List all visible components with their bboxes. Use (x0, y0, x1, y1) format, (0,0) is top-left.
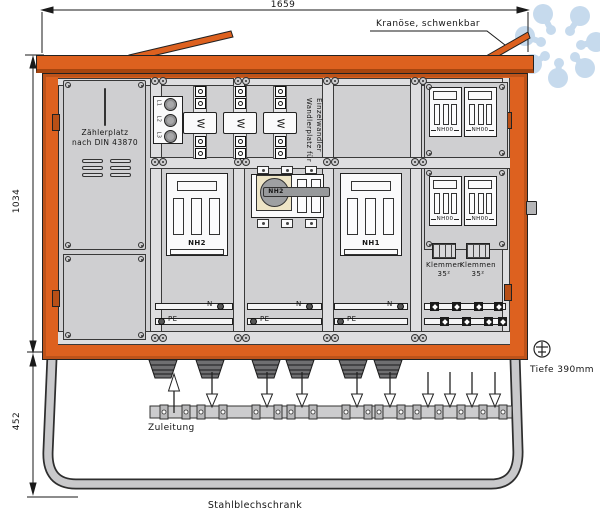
nh2-top-bar (177, 181, 217, 191)
screw (138, 256, 144, 262)
nh00-label: NH00 (431, 216, 459, 222)
nh00-top-bar (468, 180, 492, 189)
screw (234, 334, 242, 342)
vent-slot (110, 159, 131, 163)
nh2-fuse-label: NH2 (166, 239, 228, 247)
screw (151, 334, 159, 342)
screw (159, 77, 167, 85)
screw (426, 170, 432, 176)
outgoing-arrow (467, 372, 478, 407)
fuse-slot (451, 104, 457, 125)
nh2-switch-label: NH2 (262, 188, 290, 195)
screw (426, 150, 432, 156)
screw (426, 84, 432, 90)
switch-terminal (281, 166, 293, 174)
cable-gland (196, 360, 224, 378)
fuse-slot (191, 198, 202, 235)
phase-knob (164, 98, 177, 111)
phase-knob (164, 114, 177, 127)
fuse-slot (434, 193, 440, 214)
cable-gland (286, 360, 314, 378)
screw (323, 334, 331, 342)
transformer-terminal (195, 136, 206, 147)
screw (419, 77, 427, 85)
meter-label-line1: Zählerplatz (58, 128, 152, 138)
screw (426, 241, 432, 247)
pe-label: PE (260, 315, 269, 323)
screw (234, 158, 242, 166)
phase-label: L3 (155, 132, 161, 139)
transformer-terminal (275, 136, 286, 147)
screw (499, 150, 505, 156)
phase-label: L1 (155, 100, 161, 107)
screw (242, 158, 250, 166)
n-label: N (387, 300, 393, 308)
fuse-slot (347, 198, 358, 235)
screw (419, 158, 427, 166)
nh2-bottom-bar (170, 249, 224, 255)
n-terminal (397, 303, 404, 310)
screw (138, 332, 144, 338)
pe-terminal (337, 318, 344, 325)
outgoing-arrow (490, 372, 501, 407)
klemmen-terminal (432, 243, 456, 259)
dimension-height-value: 1034 (12, 179, 22, 223)
hinge (504, 284, 512, 301)
screw (499, 84, 505, 90)
screw (411, 158, 419, 166)
n-label: N (296, 300, 302, 308)
cable-gland (252, 360, 280, 378)
fuse-slot (443, 193, 449, 214)
screw (65, 242, 71, 248)
meter-label-line2: nach DIN 43870 (58, 138, 152, 148)
switch-terminal (305, 219, 317, 228)
pe-label: PE (347, 315, 356, 323)
mounting-rail (150, 405, 512, 419)
vent-slot (110, 173, 131, 177)
vent-slot (82, 166, 103, 170)
screw (411, 334, 419, 342)
screw (159, 158, 167, 166)
cable-gland (374, 360, 402, 378)
cable-gland (149, 360, 177, 378)
transformer-body: W (263, 112, 297, 134)
vent-slot (82, 173, 103, 177)
screw (331, 158, 339, 166)
fuse-slot (478, 104, 484, 125)
switch-terminal (305, 166, 317, 174)
outgoing-arrow (423, 372, 434, 407)
door-handle (526, 201, 537, 215)
nh00-top-bar (433, 91, 457, 100)
nh00-label: NH00 (466, 216, 494, 222)
depth-label: Tiefe 390mm (530, 365, 594, 375)
supply-label: Zuleitung (148, 423, 195, 433)
dimension-width-value: 1659 (255, 0, 311, 10)
screw (499, 241, 505, 247)
bus-clamp (474, 302, 483, 311)
pe-label: PE (168, 315, 177, 323)
transformer-area-label2: Einzelwandler (315, 89, 323, 161)
fuse-slot (469, 193, 475, 214)
screw (242, 77, 250, 85)
screw (323, 158, 331, 166)
fuse-slot (486, 193, 492, 214)
switch-terminal (281, 219, 293, 228)
transformer-terminal (275, 148, 286, 159)
crane-label: Kranöse, schwenkbar (368, 19, 488, 29)
screw (323, 77, 331, 85)
n-terminal (217, 303, 224, 310)
cable-gland (339, 360, 367, 378)
technical-drawing: Zählerplatz nach DIN 43870 L1 L2 L3 W W … (0, 0, 600, 517)
phase-label: L2 (155, 116, 161, 123)
transformer-symbol: W (234, 118, 245, 128)
nh00-top-bar (433, 180, 457, 189)
screw (159, 334, 167, 342)
cable-glands (149, 360, 402, 378)
screw (138, 82, 144, 88)
bus-clamp (498, 317, 507, 326)
transformer-terminal (235, 98, 246, 109)
pe-busbar (155, 318, 233, 325)
fuse-slot (478, 193, 484, 214)
pe-terminal (250, 318, 257, 325)
screw (151, 158, 159, 166)
dimension-width-line (42, 7, 528, 53)
meter-pointer (104, 88, 106, 126)
fuse-slot (173, 198, 184, 235)
fuse-slot (383, 198, 394, 235)
klemmen-label: Klemmen 35² (458, 261, 498, 279)
earth-symbol (534, 341, 550, 357)
transformer-terminal (235, 86, 246, 97)
hinge (52, 290, 60, 307)
nh00-fuse-strip: NH00 (429, 176, 462, 226)
bus-clamp (462, 317, 471, 326)
bus-clamp (494, 302, 503, 311)
fuse-slot (434, 104, 440, 125)
bus-clamp (440, 317, 449, 326)
bus-clamp (430, 302, 439, 311)
fuse-slot (443, 104, 449, 125)
transformer-terminal (275, 98, 286, 109)
screw (65, 332, 71, 338)
transformer-body: W (183, 112, 217, 134)
pe-busbar (334, 318, 408, 325)
pe-terminal (158, 318, 165, 325)
fuse-slot (365, 198, 376, 235)
transformer-body: W (223, 112, 257, 134)
stand-frame (48, 357, 518, 484)
vertical-rail (410, 78, 422, 345)
screw (499, 170, 505, 176)
fuse-slot (469, 104, 475, 125)
nh00-fuse-strip: NH00 (464, 87, 497, 137)
fuse-slot (209, 198, 220, 235)
screw (419, 334, 427, 342)
vent-slot (110, 166, 131, 170)
pe-busbar (247, 318, 322, 325)
nh1-fuse-label: NH1 (340, 239, 402, 247)
transformer-terminal (275, 86, 286, 97)
transformer-area-label: Wandlerplatz für (305, 87, 313, 173)
nh00-fuse-strip: NH00 (464, 176, 497, 226)
transformer-symbol: W (194, 118, 205, 128)
phase-knob (164, 130, 177, 143)
n-label: N (207, 300, 213, 308)
nh00-top-bar (468, 91, 492, 100)
screw (331, 77, 339, 85)
screw (65, 256, 71, 262)
switch-terminal (257, 166, 269, 174)
n-terminal (306, 303, 313, 310)
switch-terminal (257, 219, 269, 228)
transformer-terminal (195, 98, 206, 109)
nh00-label: NH00 (466, 127, 494, 133)
screw (411, 77, 419, 85)
crane-label-leader (370, 31, 505, 45)
nh00-label: NH00 (431, 127, 459, 133)
screw (151, 77, 159, 85)
screw (242, 334, 250, 342)
nh1-top-bar (351, 181, 391, 191)
meter-label: Zählerplatz nach DIN 43870 (58, 128, 152, 148)
screw (331, 334, 339, 342)
klemmen-terminal (466, 243, 490, 259)
fuse-slot (451, 193, 457, 214)
outgoing-arrow (445, 372, 456, 407)
cabinet-roof (36, 55, 534, 73)
screw (65, 82, 71, 88)
bus-clamp (452, 302, 461, 311)
cabinet-type-label: Stahlblechschrank (180, 500, 330, 511)
nh00-fuse-strip: NH00 (429, 87, 462, 137)
fuse-slot (486, 104, 492, 125)
transformer-terminal (235, 136, 246, 147)
transformer-terminal (195, 86, 206, 97)
blank-panel (63, 254, 146, 340)
bus-clamp (484, 317, 493, 326)
transformer-terminal (195, 148, 206, 159)
screw (234, 77, 242, 85)
screw (138, 242, 144, 248)
nh1-bottom-bar (344, 249, 398, 255)
dimension-base-value: 452 (12, 403, 22, 439)
vent-slot (82, 159, 103, 163)
transformer-symbol: W (274, 118, 285, 128)
